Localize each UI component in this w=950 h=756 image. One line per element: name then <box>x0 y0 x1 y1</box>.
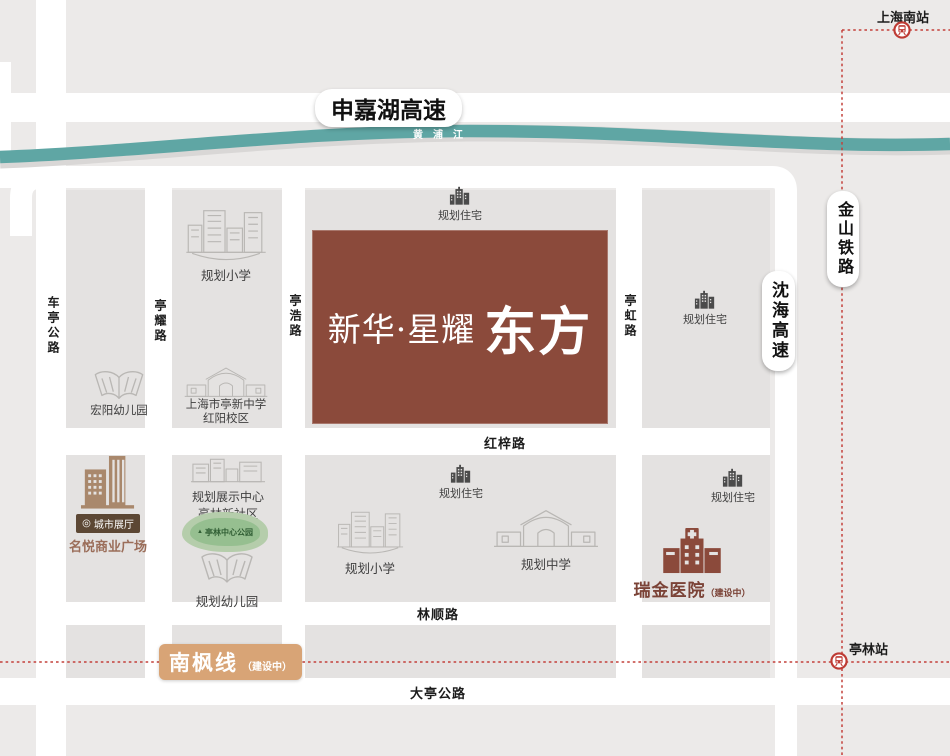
poi-status: （建设中） <box>706 586 751 599</box>
poi-hongyang-kindergarten: 宏阳幼儿园 <box>80 368 158 419</box>
road-shenjiahu <box>0 93 950 122</box>
road-label-cheting: 车亭公路 <box>45 296 62 356</box>
poi-ruijin-hospital: 瑞金医院 （建设中） <box>634 528 750 601</box>
badge-label: 城市展厅 <box>94 516 134 531</box>
project-name-suffix: 东方 <box>484 290 592 365</box>
poi-label: 亭林中心公园 <box>205 527 253 538</box>
road-label-tinghong: 亭虹路 <box>622 294 639 339</box>
road-label-linshun: 林顺路 <box>417 604 459 623</box>
poi-label: 规划住宅 <box>439 485 483 501</box>
park-label-row: ▲ 亭林中心公园 <box>182 512 268 552</box>
road-label-tinghao: 亭浩路 <box>287 294 304 339</box>
hospital-icon <box>661 528 723 574</box>
city-hall-badge: ◎ 城市展厅 <box>76 514 140 533</box>
poi-residential-right-top: 规划住宅 <box>665 290 745 327</box>
shenjiahu-expressway-label: 申嘉湖高速 <box>315 89 462 127</box>
poi-label: 规划中学 <box>521 554 571 573</box>
commercial-towers-icon <box>79 454 137 510</box>
poi-residential-top: 规划住宅 <box>420 186 500 223</box>
buildings-sketch-icon <box>190 455 266 485</box>
poi-middle-school-mid: 规划中学 <box>487 503 605 573</box>
school-sketch-icon <box>182 202 270 262</box>
river-label: 黄浦江 <box>413 126 473 141</box>
gate-school-icon <box>181 364 271 398</box>
poi-label: 规划住宅 <box>438 207 482 223</box>
school-sketch-icon <box>328 505 412 555</box>
residential-icon <box>450 464 472 483</box>
residential-icon <box>722 468 744 487</box>
poi-label: 规划住宅 <box>711 489 755 505</box>
poi-label: 规划幼儿园 <box>196 591 259 610</box>
road-linshun <box>36 602 770 625</box>
poi-planned-kindergarten: 规划幼儿园 <box>180 550 274 610</box>
location-map: 新华·星耀 东方 申嘉湖高速 金山铁路 沈海高速 黄浦江 车亭公路 亭耀路 亭浩… <box>0 0 950 756</box>
road-label-dating: 大亭公路 <box>410 683 466 702</box>
project-block: 新华·星耀 东方 <box>312 230 608 424</box>
poi-label: 规划小学 <box>345 558 395 577</box>
poi-mingyue-plaza: ◎ 城市展厅 名悦商业广场 <box>68 454 148 555</box>
residential-icon <box>449 186 471 205</box>
book-icon <box>196 550 258 588</box>
residential-icon <box>694 290 716 309</box>
hospital-label-row: 瑞金医院 （建设中） <box>634 576 751 601</box>
jinshan-railway-label: 金山铁路 <box>827 191 859 287</box>
road-hongzi <box>36 428 770 455</box>
poi-residential-mid: 规划住宅 <box>421 464 501 501</box>
pin-icon: ◎ <box>82 518 91 529</box>
poi-label: 名悦商业广场 <box>69 536 147 555</box>
metro-line-status: （建设中） <box>242 658 292 673</box>
gate-school-icon <box>493 503 599 551</box>
road-label-tingyao: 亭耀路 <box>152 299 169 344</box>
book-icon <box>89 368 149 404</box>
poi-label: 上海市亭新中学 <box>186 399 267 413</box>
nanfeng-line-badge: 南枫线 （建设中） <box>159 644 302 680</box>
station-label-tinglin: 亭林站 <box>849 639 888 658</box>
poi-park: ▲ 亭林中心公园 <box>182 512 268 552</box>
poi-primary-school-mid: 规划小学 <box>322 505 418 577</box>
project-name: 新华·星耀 <box>328 303 476 351</box>
metro-station-icon <box>830 652 848 670</box>
poi-label: 规划小学 <box>201 265 251 284</box>
poi-residential-right-bottom: 规划住宅 <box>693 468 773 505</box>
road-label-hongzi: 红梓路 <box>484 433 526 452</box>
shenhai-expressway-label: 沈海高速 <box>762 271 795 371</box>
poi-tingxin-middle-school: 上海市亭新中学 红阳校区 <box>173 364 279 426</box>
poi-label: 瑞金医院 <box>634 576 706 601</box>
poi-label: 宏阳幼儿园 <box>90 405 148 419</box>
poi-label: 规划展示中心 <box>192 488 264 505</box>
poi-label: 红阳校区 <box>203 413 249 427</box>
road-dating <box>0 678 950 705</box>
poi-label: 规划住宅 <box>683 311 727 327</box>
metro-line-name: 南枫线 <box>169 647 238 677</box>
metro-station-icon <box>893 21 911 39</box>
poi-primary-school-top: 规划小学 <box>173 202 279 284</box>
tree-icon: ▲ <box>197 529 203 535</box>
